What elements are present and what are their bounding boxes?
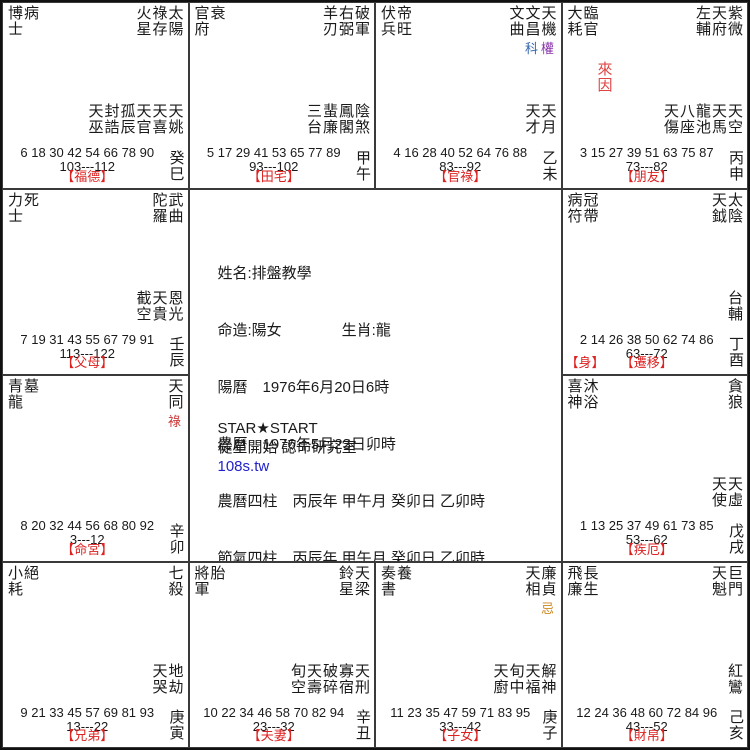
- vertical-name-column: 大耗: [566, 5, 582, 37]
- stem-branch: 甲午: [354, 150, 370, 182]
- cycle-gods: 力士死: [6, 192, 38, 224]
- vertical-name-column: 寡宿: [337, 663, 353, 695]
- minor-stars: 天廚旬中天福解神: [492, 663, 556, 695]
- vertical-name-column: 天官: [135, 103, 151, 135]
- star-column: 太陰: [726, 192, 742, 224]
- palace-cell-chen: 力士死 陀羅武曲 截空天貴恩光 7 19 31 43 55 67 79 91 1…: [2, 189, 189, 376]
- vertical-name-column: 病符: [566, 192, 582, 224]
- star-column: 天府: [710, 5, 726, 37]
- vertical-name-column: 孤辰: [119, 103, 135, 135]
- star-column: 天魁: [710, 565, 726, 597]
- palace-cell-xu: 喜神沐浴 貪狼 天使天虛 1 13 25 37 49 61 73 85 53--…: [562, 375, 749, 562]
- minor-stars: 截空天貴恩光: [135, 290, 183, 322]
- star-name: 右弼: [337, 5, 353, 37]
- age-row: 4 16 28 40 52 64 76 88: [376, 145, 545, 160]
- cycle-gods: 博士病: [6, 5, 38, 37]
- vertical-name-column: 死: [22, 192, 38, 224]
- palace-cell-you: 病符冠帶 天鉞太陰 台輔 2 14 26 38 50 62 74 86 63--…: [562, 189, 749, 376]
- age-row: 6 18 30 42 54 66 78 90: [3, 145, 172, 160]
- cycle-gods: 青龍墓: [6, 378, 38, 410]
- age-row: 12 24 36 48 60 72 84 96: [563, 705, 732, 720]
- palace-label: 【朋友】: [563, 166, 732, 185]
- vertical-name-column: 天壽: [305, 663, 321, 695]
- star-column: 巨門: [726, 565, 742, 597]
- vertical-name-column: 沐浴: [582, 378, 598, 410]
- major-stars: 火星祿存太陽: [135, 5, 183, 37]
- palace-label: 【疾厄】: [563, 539, 732, 558]
- center-info-panel: 姓名:排盤教學 命造:陽女 生肖:龍 陽曆 1976年6月20日6時 農曆 19…: [189, 189, 562, 562]
- star-name: 紫微: [726, 5, 742, 37]
- age-row: 11 23 35 47 59 71 83 95: [376, 705, 545, 720]
- vertical-name-column: 病: [22, 5, 38, 37]
- star-column: 七殺: [167, 565, 183, 597]
- vertical-name-column: 天馬: [710, 103, 726, 135]
- natal-info-block: 姓名:排盤教學 命造:陽女 生肖:龍 陽曆 1976年6月20日6時 農曆 19…: [218, 226, 486, 562]
- studio-name-en: STAR★START: [218, 419, 357, 438]
- info-line-lunar-pillars: 農曆四柱 丙辰年 甲午月 癸卯日 乙卯時: [218, 492, 486, 511]
- star-name: 破軍: [353, 5, 369, 37]
- vertical-name-column: 封誥: [103, 103, 119, 135]
- ziwei-chart-board: 博士病 火星祿存太陽 天巫封誥孤辰天官天喜天姚 6 18 30 42 54 66…: [0, 0, 750, 750]
- star-name: 天相: [524, 565, 540, 597]
- vertical-name-column: 喜神: [566, 378, 582, 410]
- vertical-name-column: 台輔: [726, 290, 742, 322]
- cycle-gods: 伏兵帝旺: [379, 5, 411, 37]
- vertical-name-column: 陰煞: [353, 103, 369, 135]
- vertical-name-column: 天巫: [87, 103, 103, 135]
- star-name: 陀羅: [151, 192, 167, 224]
- star-column: 祿存: [151, 5, 167, 37]
- star-name: 貪狼: [726, 378, 742, 410]
- age-row: 8 20 32 44 56 68 80 92: [3, 518, 172, 533]
- palace-cell-zi: 奏書養 天相廉貞忌 天廚旬中天福解神 11 23 35 47 59 71 83 …: [375, 562, 562, 749]
- star-name: 羊刃: [321, 5, 337, 37]
- palace-cell-wu: 官府衰 羊刃右弼破軍 三台蜚廉鳳閣陰煞 5 17 29 41 53 65 77 …: [189, 2, 376, 189]
- transformation-tag: 祿: [168, 411, 181, 430]
- vertical-name-column: 天福: [524, 663, 540, 695]
- star-column: 貪狼: [726, 378, 742, 410]
- vertical-name-column: 蜚廉: [321, 103, 337, 135]
- cycle-gods: 奏書養: [379, 565, 411, 597]
- info-line-name: 姓名:排盤教學: [218, 264, 486, 283]
- palace-label: 【兄弟】: [3, 725, 172, 744]
- star-name: 七殺: [167, 565, 183, 597]
- vertical-name-column: 奏書: [379, 565, 395, 597]
- transformation-tag: 忌: [541, 598, 554, 617]
- palace-label: 【福德】: [3, 166, 172, 185]
- palace-cell-chou: 將軍胎 鈴星天梁 旬空天壽破碎寡宿天刑 10 22 34 46 58 70 82…: [189, 562, 376, 749]
- vertical-name-column: 八座: [678, 103, 694, 135]
- major-stars: 天鉞太陰: [710, 192, 742, 224]
- vertical-name-column: 地劫: [167, 663, 183, 695]
- vertical-name-column: 臨官: [582, 5, 598, 37]
- vertical-name-column: 青龍: [6, 378, 22, 410]
- vertical-name-column: 天月: [540, 103, 556, 135]
- vertical-name-column: 天刑: [353, 663, 369, 695]
- star-name: 天梁: [353, 565, 369, 597]
- vertical-name-column: 小耗: [6, 565, 22, 597]
- minor-stars: 天才天月: [524, 103, 556, 135]
- vertical-name-column: 墓: [22, 378, 38, 410]
- vertical-name-column: 將軍: [193, 565, 209, 597]
- vertical-name-column: 恩光: [167, 290, 183, 322]
- stem-branch: 庚子: [541, 709, 557, 741]
- star-column: 羊刃: [321, 5, 337, 37]
- transformation-tag: 權: [541, 38, 554, 57]
- minor-stars: 天傷八座龍池天馬天空: [662, 103, 742, 135]
- vertical-name-column: 天喜: [151, 103, 167, 135]
- star-name: 廉貞: [540, 565, 556, 597]
- palace-cell-wei: 伏兵帝旺 文曲文昌科天機權 天才天月 4 16 28 40 52 64 76 8…: [375, 2, 562, 189]
- star-name: 武曲: [167, 192, 183, 224]
- vertical-name-column: 天廚: [492, 663, 508, 695]
- star-column: 天同祿: [167, 378, 183, 430]
- vertical-name-column: 解神: [540, 663, 556, 695]
- stem-branch: 癸巳: [168, 150, 184, 182]
- star-column: 陀羅: [151, 192, 167, 224]
- major-stars: 鈴星天梁: [337, 565, 369, 597]
- age-row: 7 19 31 43 55 67 79 91: [3, 332, 172, 347]
- palace-label: 【官祿】: [376, 166, 545, 185]
- cycle-gods: 官府衰: [193, 5, 225, 37]
- minor-stars: 三台蜚廉鳳閣陰煞: [305, 103, 369, 135]
- star-name: 天機: [540, 5, 556, 37]
- vertical-name-column: 絕: [22, 565, 38, 597]
- major-stars: 天同祿: [167, 378, 183, 430]
- star-name: 火星: [135, 5, 151, 37]
- vertical-name-column: 紅鸞: [726, 663, 742, 695]
- laiyin-tag: 來因: [596, 61, 612, 93]
- vertical-name-column: 官府: [193, 5, 209, 37]
- star-column: 左輔: [694, 5, 710, 37]
- star-column: 鈴星: [337, 565, 353, 597]
- vertical-name-column: 衰: [209, 5, 225, 37]
- stem-branch: 乙未: [541, 150, 557, 182]
- info-line-solarterm-pillars: 節氣四柱 丙辰年 甲午月 癸卯日 乙卯時: [218, 549, 486, 562]
- vertical-name-column: 天哭: [151, 663, 167, 695]
- star-column: 右弼: [337, 5, 353, 37]
- vertical-name-column: 博士: [6, 5, 22, 37]
- major-stars: 陀羅武曲: [151, 192, 183, 224]
- vertical-name-column: 冠帶: [582, 192, 598, 224]
- star-name: 天魁: [710, 565, 726, 597]
- palace-cell-hai: 飛廉長生 天魁巨門 紅鸞 12 24 36 48 60 72 84 96 43-…: [562, 562, 749, 749]
- cycle-gods: 將軍胎: [193, 565, 225, 597]
- vertical-name-column: 鳳閣: [337, 103, 353, 135]
- minor-stars: 紅鸞: [726, 663, 742, 695]
- star-name: 巨門: [726, 565, 742, 597]
- star-column: 火星: [135, 5, 151, 37]
- stem-branch: 丁酉: [727, 336, 743, 368]
- major-stars: 文曲文昌科天機權: [508, 5, 556, 57]
- star-name: 文曲: [508, 5, 524, 37]
- age-row: 5 17 29 41 53 65 77 89: [190, 145, 359, 160]
- vertical-name-column: 伏兵: [379, 5, 395, 37]
- star-name: 太陽: [167, 5, 183, 37]
- major-stars: 天相廉貞忌: [524, 565, 556, 617]
- vertical-name-column: 飛廉: [566, 565, 582, 597]
- palace-label: 【父母】: [3, 352, 172, 371]
- star-name: 鈴星: [337, 565, 353, 597]
- cycle-gods: 喜神沐浴: [566, 378, 598, 410]
- minor-stars: 台輔: [726, 290, 742, 322]
- age-row: 9 21 33 45 57 69 81 93: [3, 705, 172, 720]
- star-column: 天機權: [540, 5, 556, 57]
- star-column: 廉貞忌: [540, 565, 556, 617]
- star-column: 紫微: [726, 5, 742, 37]
- major-stars: 左輔天府紫微: [694, 5, 742, 37]
- stem-branch: 己亥: [727, 709, 743, 741]
- cycle-gods: 大耗臨官: [566, 5, 598, 37]
- palace-cell-si: 博士病 火星祿存太陽 天巫封誥孤辰天官天喜天姚 6 18 30 42 54 66…: [2, 2, 189, 189]
- vertical-name-column: 天使: [710, 476, 726, 508]
- palace-label: 【財帛】: [563, 725, 732, 744]
- vertical-name-column: 破碎: [321, 663, 337, 695]
- star-name: 文昌: [524, 5, 540, 37]
- cycle-gods: 病符冠帶: [566, 192, 598, 224]
- info-line-solar-date: 陽曆 1976年6月20日6時: [218, 378, 486, 397]
- vertical-name-column: 天空: [726, 103, 742, 135]
- stem-branch: 戊戌: [727, 523, 743, 555]
- palace-cell-shen: 大耗臨官 左輔天府紫微 來因 天傷八座龍池天馬天空 3 15 27 39 51 …: [562, 2, 749, 189]
- vertical-name-column: 帝旺: [395, 5, 411, 37]
- vertical-name-column: 養: [395, 565, 411, 597]
- cycle-gods: 小耗絕: [6, 565, 38, 597]
- vertical-name-column: 三台: [305, 103, 321, 135]
- age-row: 3 15 27 39 51 63 75 87: [563, 145, 732, 160]
- vertical-name-column: 胎: [209, 565, 225, 597]
- transformation-tag: 科: [525, 38, 538, 57]
- stem-branch: 丙申: [727, 150, 743, 182]
- palace-cell-yin: 小耗絕 七殺 天哭地劫 9 21 33 45 57 69 81 93 13---…: [2, 562, 189, 749]
- vertical-name-column: 旬中: [508, 663, 524, 695]
- vertical-name-column: 旬空: [289, 663, 305, 695]
- star-name: 天府: [710, 5, 726, 37]
- vertical-name-column: 天虛: [726, 476, 742, 508]
- website-link[interactable]: 108s.tw: [218, 458, 270, 475]
- major-stars: 天魁巨門: [710, 565, 742, 597]
- star-name: 祿存: [151, 5, 167, 37]
- palace-label: 【命宮】: [3, 539, 172, 558]
- star-column: 文昌科: [524, 5, 540, 57]
- star-column: 文曲: [508, 5, 524, 37]
- major-stars: 貪狼: [726, 378, 742, 410]
- palace-label: 【子女】: [376, 725, 545, 744]
- minor-stars: 天巫封誥孤辰天官天喜天姚: [87, 103, 183, 135]
- cycle-gods: 飛廉長生: [566, 565, 598, 597]
- vertical-name-column: 龍池: [694, 103, 710, 135]
- vertical-name-column: 力士: [6, 192, 22, 224]
- stem-branch: 辛丑: [354, 709, 370, 741]
- minor-stars: 旬空天壽破碎寡宿天刑: [289, 663, 369, 695]
- stem-branch: 辛卯: [168, 523, 184, 555]
- palace-cell-mao: 青龍墓 天同祿 8 20 32 44 56 68 80 92 3---12 【命…: [2, 375, 189, 562]
- studio-block: STAR★START 從星開始 認命研究室 108s.tw: [218, 419, 357, 476]
- star-column: 武曲: [167, 192, 183, 224]
- palace-label: 【夫妻】: [190, 725, 359, 744]
- palace-label: 【田宅】: [190, 166, 359, 185]
- vertical-name-column: 天才: [524, 103, 540, 135]
- star-column: 太陽: [167, 5, 183, 37]
- star-column: 破軍: [353, 5, 369, 37]
- studio-name-zh: 從星開始 認命研究室: [218, 438, 357, 457]
- vertical-name-column: 天姚: [167, 103, 183, 135]
- minor-stars: 天使天虛: [710, 476, 742, 508]
- vertical-name-column: 天傷: [662, 103, 678, 135]
- vertical-name-column: 長生: [582, 565, 598, 597]
- minor-stars: 天哭地劫: [151, 663, 183, 695]
- vertical-name-column: 截空: [135, 290, 151, 322]
- major-stars: 七殺: [167, 565, 183, 597]
- age-row: 10 22 34 46 58 70 82 94: [190, 705, 359, 720]
- star-name: 太陰: [726, 192, 742, 224]
- stem-branch: 庚寅: [168, 709, 184, 741]
- palace-label: 【遷移】: [563, 352, 732, 371]
- star-column: 天梁: [353, 565, 369, 597]
- star-column: 天相: [524, 565, 540, 597]
- age-row: 1 13 25 37 49 61 73 85: [563, 518, 732, 533]
- vertical-name-column: 天貴: [151, 290, 167, 322]
- star-name: 天同: [167, 378, 183, 410]
- star-name: 天鉞: [710, 192, 726, 224]
- star-column: 天鉞: [710, 192, 726, 224]
- stem-branch: 壬辰: [168, 336, 184, 368]
- age-row: 2 14 26 38 50 62 74 86: [563, 332, 732, 347]
- star-name: 左輔: [694, 5, 710, 37]
- major-stars: 羊刃右弼破軍: [321, 5, 369, 37]
- info-line-gender-zodiac: 命造:陽女 生肖:龍: [218, 321, 486, 340]
